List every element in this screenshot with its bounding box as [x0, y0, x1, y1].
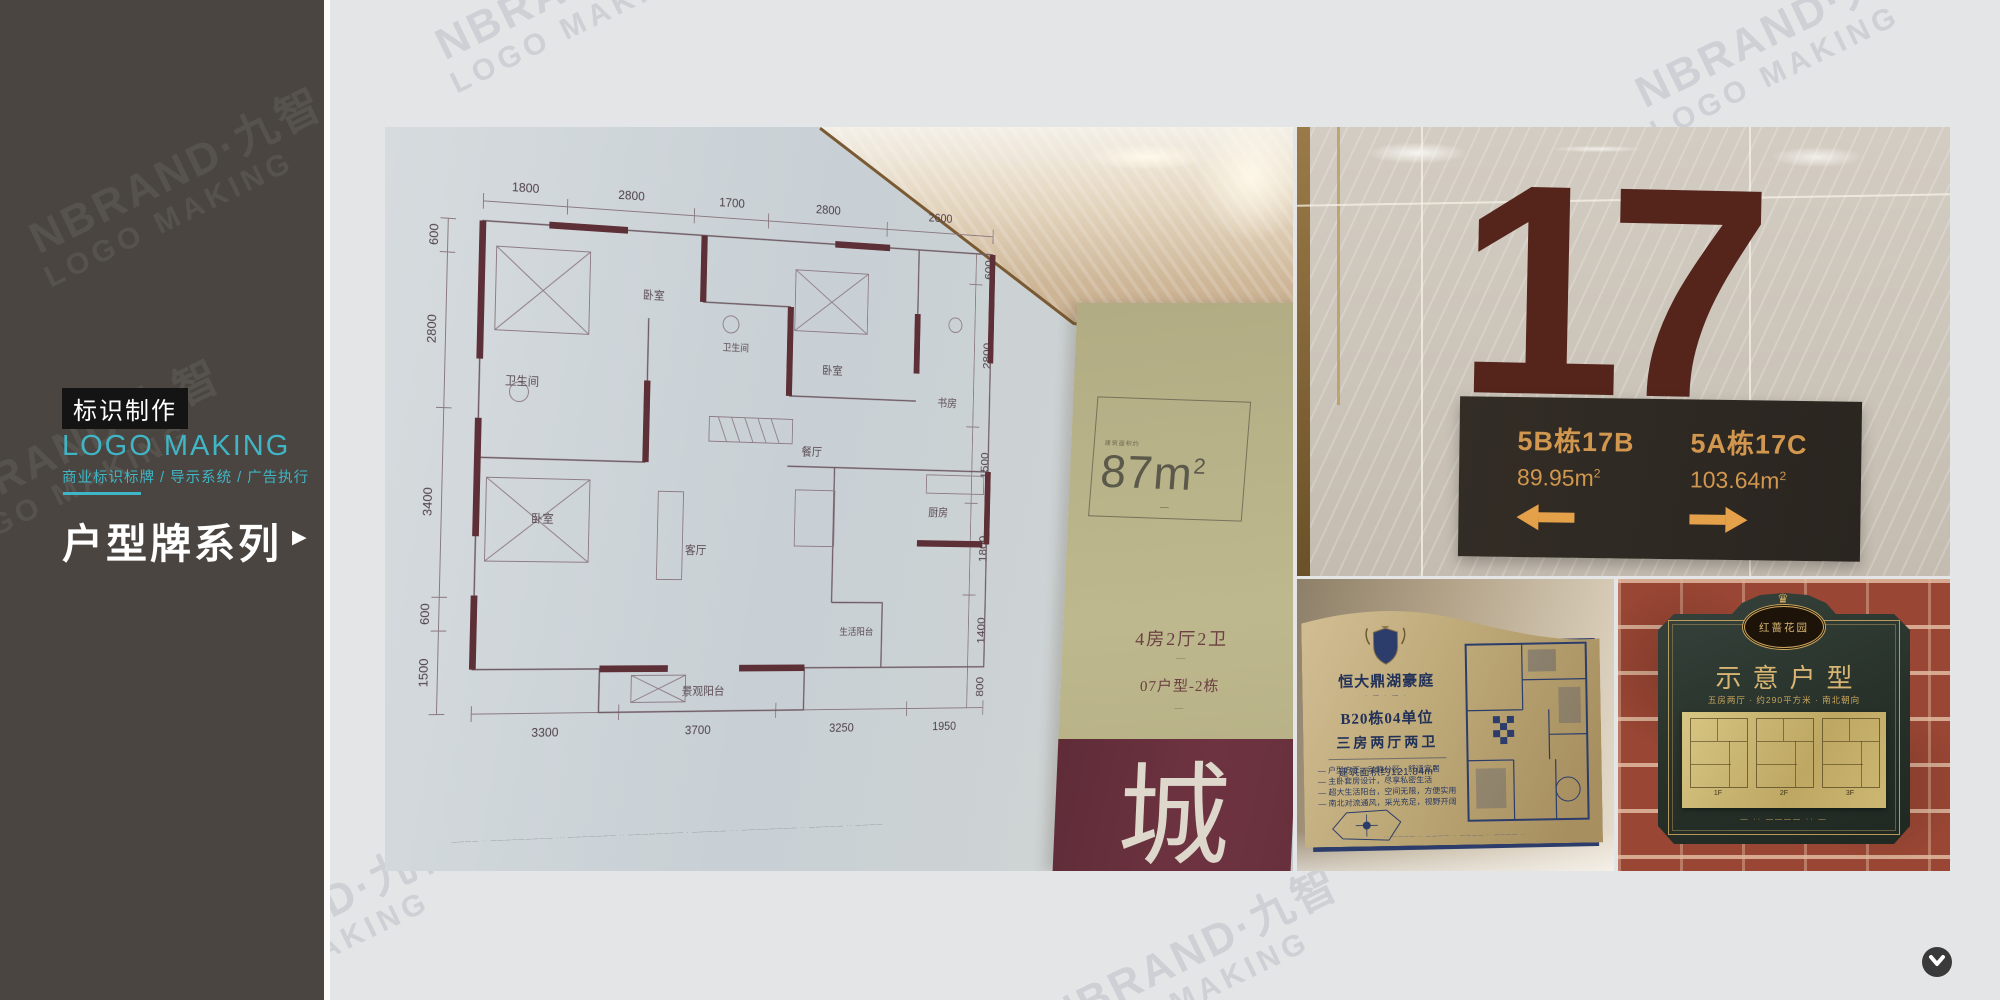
scroll-down-button[interactable] [1922, 947, 1952, 977]
selling-points-list: 户型方正，动静分区，舒适宜居 主卧套房设计，尽享私密生活 超大生活阳台，空间无限… [1318, 763, 1471, 810]
watermark-line2: LOGO MAKING [446, 0, 751, 100]
svg-text:生活阳台: 生活阳台 [839, 626, 873, 638]
services-subtitle: 商业标识标牌 / 导示系统 / 广告执行 [62, 466, 309, 487]
mini-floor-plan [1462, 639, 1593, 825]
watermark-line1: NBRAND·九智 [429, 0, 737, 68]
svg-text:客厅: 客厅 [685, 543, 707, 557]
fine-print: ———— ·· ————————— ··· ——————— ·· ———————… [451, 814, 1071, 846]
floor-label: 1F [1690, 790, 1746, 797]
unit-name: 5B栋17B [1517, 419, 1635, 460]
svg-text:600: 600 [426, 223, 441, 245]
plaque-title: 示意户型 [1658, 658, 1910, 695]
plaque-left-column: 恒大鼎湖豪庭 · — · — · B20栋04单位 三房两厅两卫 建筑面积约12… [1309, 617, 1464, 780]
unit-area: 89.95m2 [1517, 464, 1634, 493]
svg-text:卫生间: 卫生间 [505, 373, 539, 388]
area-sup: 2 [1193, 454, 1208, 479]
photo-floorplan-board: 1800 2800 1700 2800 2600 600 2800 3400 6… [385, 127, 1293, 871]
brass-plan-plate: 1F 2F 3F [1682, 712, 1886, 808]
divider [1329, 757, 1447, 760]
area-number: 89.95m [1517, 464, 1594, 491]
watermark-line2: LOGO MAKING [1056, 904, 1361, 1000]
divider-dash: — [1159, 502, 1169, 512]
floor-label: 3F [1822, 790, 1878, 797]
watermark-line1: NBRAND·九智 [1629, 0, 1937, 116]
brand-glyph: 城 [1116, 761, 1233, 871]
estate-name: 红蔷花园 [1759, 620, 1809, 635]
svg-text:3250: 3250 [829, 720, 854, 734]
svg-text:景观阳台: 景观阳台 [682, 684, 725, 698]
board-olive-panel: 建筑面积约 87m2 — 4房2厅2卫 — 07户型-2栋 — 城 [1053, 303, 1293, 871]
area-number: 87m [1099, 445, 1195, 500]
section-badge: 标识制作 [62, 388, 188, 429]
brand-logo-block: 城 [1052, 739, 1293, 871]
area-box: 建筑面积约 87m2 — [1088, 396, 1251, 521]
floor-plan-drawing: 1800 2800 1700 2800 2600 600 2800 3400 6… [391, 156, 1018, 806]
layout-spec: 4房2厅2卫 [1062, 625, 1293, 651]
photo-brick-wall-plaque: ♛ 红蔷花园 示意户型 五房两厅 · 约290平方米 · 南北朝向 1F 2F … [1618, 579, 1950, 871]
dimension-chains [428, 190, 993, 723]
unit-name: 5A栋17C [1690, 421, 1808, 462]
badge-oval: 红蔷花园 [1742, 604, 1826, 650]
arrow-right-icon [1689, 505, 1806, 535]
layout-spec: 三房两厅两卫 [1311, 731, 1463, 754]
plaque-subtitle: 五房两厅 · 约290平方米 · 南北朝向 [1658, 694, 1910, 706]
unit-label: 07户型-2栋 [1060, 675, 1293, 696]
mini-plan-2f [1756, 718, 1814, 788]
area-sup: 2 [1594, 466, 1601, 480]
divider-dash: — [1059, 703, 1293, 713]
page: NBRAND·九智 LOGO MAKING NBRAND·九智 LOGO MAK… [0, 0, 2000, 1000]
gold-plaque: 恒大鼎湖豪庭 · — · — · B20栋04单位 三房两厅两卫 建筑面积约12… [1301, 602, 1603, 847]
unit-area: 103.64m2 [1690, 466, 1807, 495]
watermark: NBRAND·九智 LOGO MAKING [1039, 862, 1361, 1000]
svg-text:3300: 3300 [531, 725, 559, 740]
direction-right: 5A栋17C 103.64m2 [1689, 421, 1808, 561]
svg-text:卧室: 卧室 [531, 512, 554, 526]
project-name: 恒大鼎湖豪庭 [1310, 669, 1462, 693]
floor-label: 2F [1756, 790, 1812, 797]
svg-text:餐厅: 餐厅 [801, 445, 822, 459]
svg-text:1800: 1800 [512, 179, 540, 196]
svg-text:3700: 3700 [685, 722, 711, 737]
floor-plan-walls [472, 221, 992, 670]
svg-text:2800: 2800 [424, 314, 439, 343]
watermark-line1: NBRAND·九智 [1039, 862, 1347, 1000]
shield-logo-icon [1363, 626, 1408, 667]
wood-trim [1297, 127, 1310, 576]
logo-making-label: LOGO MAKING [62, 430, 290, 463]
svg-text:3400: 3400 [420, 487, 435, 516]
estate-badge: ♛ 红蔷花园 [1734, 594, 1834, 650]
svg-text:600: 600 [417, 603, 432, 625]
green-plaque: ♛ 红蔷花园 示意户型 五房两厅 · 约290平方米 · 南北朝向 1F 2F … [1658, 592, 1910, 844]
tile-seam [1421, 127, 1423, 576]
sidebar: NBRAND·九智 LOGO MAKING NBRAND·九智 LOGO MAK… [0, 0, 330, 1000]
watermark-line2: LOGO MAKING [1646, 0, 1951, 148]
unit-number: B20栋04单位 [1311, 706, 1463, 730]
svg-text:书房: 书房 [937, 396, 957, 410]
svg-text:卧室: 卧室 [822, 364, 843, 378]
area-value: 87m2 [1099, 444, 1209, 502]
watermark: NBRAND·九智 LOGO MAKING [23, 82, 345, 292]
series-title[interactable]: 户型牌系列 [62, 510, 282, 570]
area-sup: 2 [1779, 469, 1786, 483]
arrow-left-icon [1516, 503, 1633, 533]
svg-text:800: 800 [973, 677, 986, 697]
decorative-marks: · — · — · [1310, 692, 1462, 701]
svg-text:厨房: 厨房 [928, 506, 948, 519]
svg-text:1950: 1950 [932, 719, 956, 733]
area-number: 103.64m [1690, 466, 1780, 493]
watermark: NBRAND·九智 LOGO MAKING [1629, 0, 1951, 146]
room-labels: 卫生间 卧室 卫生间 卧室 书房 卧室 客厅 餐厅 厨房 生活阳台 景观阳台 [497, 280, 959, 700]
mini-plan-1f [1690, 718, 1748, 788]
svg-text:1500: 1500 [416, 658, 431, 687]
chevron-down-icon [1928, 955, 1946, 969]
mini-plan-3f [1822, 718, 1880, 788]
watermark: NBRAND·九智 LOGO MAKING [429, 0, 751, 98]
decorative-marks: — ·· ———— ·· — [1658, 816, 1910, 823]
accent-underline [63, 492, 141, 495]
svg-text:2800: 2800 [618, 187, 645, 203]
furniture [481, 246, 988, 704]
svg-text:2600: 2600 [929, 210, 953, 226]
svg-text:卧室: 卧室 [643, 288, 665, 303]
direction-left: 5B栋17B 89.95m2 [1516, 419, 1635, 559]
direction-sign: 5B栋17B 89.95m2 5A栋17C 103.64m2 [1458, 396, 1862, 562]
brass-seam [1337, 127, 1340, 405]
divider-dash: — [1062, 653, 1293, 663]
svg-text:卫生间: 卫生间 [722, 341, 749, 355]
photo-floor-number-sign: 17 5B栋17B 89.95m2 5A栋17C 103.64m2 [1297, 127, 1950, 576]
chevron-right-icon[interactable]: ▶ [292, 526, 307, 549]
svg-text:2800: 2800 [816, 202, 841, 218]
floor-plan-outline [471, 221, 992, 715]
crown-icon: ♛ [1734, 594, 1834, 604]
watermark-line1: NBRAND·九智 [23, 82, 331, 263]
watermark-line2: LOGO MAKING [40, 124, 345, 294]
photo-gold-unit-plaque: 恒大鼎湖豪庭 · — · — · B20栋04单位 三房两厅两卫 建筑面积约12… [1297, 579, 1614, 871]
svg-text:1700: 1700 [719, 195, 745, 211]
